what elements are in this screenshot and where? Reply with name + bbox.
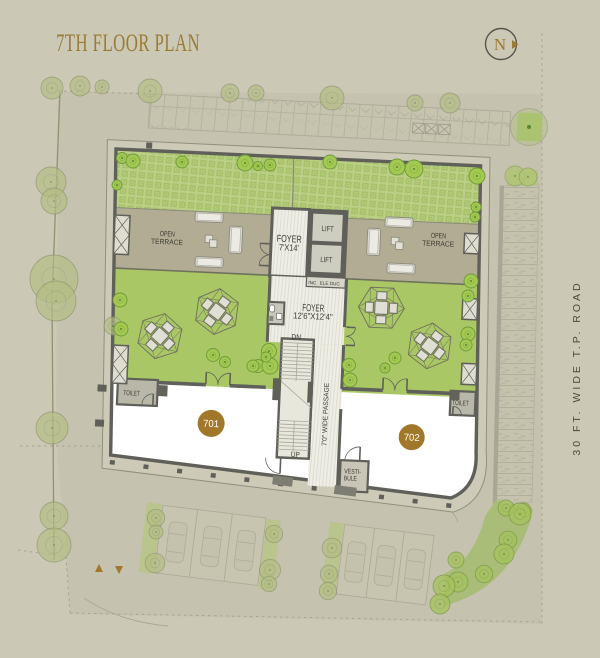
svg-text:LIFT: LIFT: [320, 255, 333, 265]
svg-text:701: 701: [203, 419, 219, 431]
svg-text:INC: INC: [308, 280, 317, 285]
svg-text:DN: DN: [291, 332, 301, 341]
svg-text:12'6"X12'4": 12'6"X12'4": [293, 310, 333, 322]
svg-text:702: 702: [403, 432, 419, 444]
svg-text:ELE DUC: ELE DUC: [320, 281, 341, 287]
svg-text:UP: UP: [291, 450, 300, 459]
svg-text:7TH FLOOR PLAN: 7TH FLOOR PLAN: [56, 29, 200, 57]
svg-text:N: N: [494, 35, 506, 54]
svg-text:TOILET: TOILET: [123, 390, 140, 398]
svg-text:TERRACE: TERRACE: [151, 237, 183, 247]
svg-text:30 FT. WIDE T.P. ROAD: 30 FT. WIDE T.P. ROAD: [571, 280, 583, 455]
svg-text:7'X14': 7'X14': [279, 242, 300, 253]
svg-text:BULE: BULE: [344, 475, 358, 483]
svg-text:LIFT: LIFT: [322, 224, 335, 234]
svg-text:TERRACE: TERRACE: [422, 238, 454, 248]
